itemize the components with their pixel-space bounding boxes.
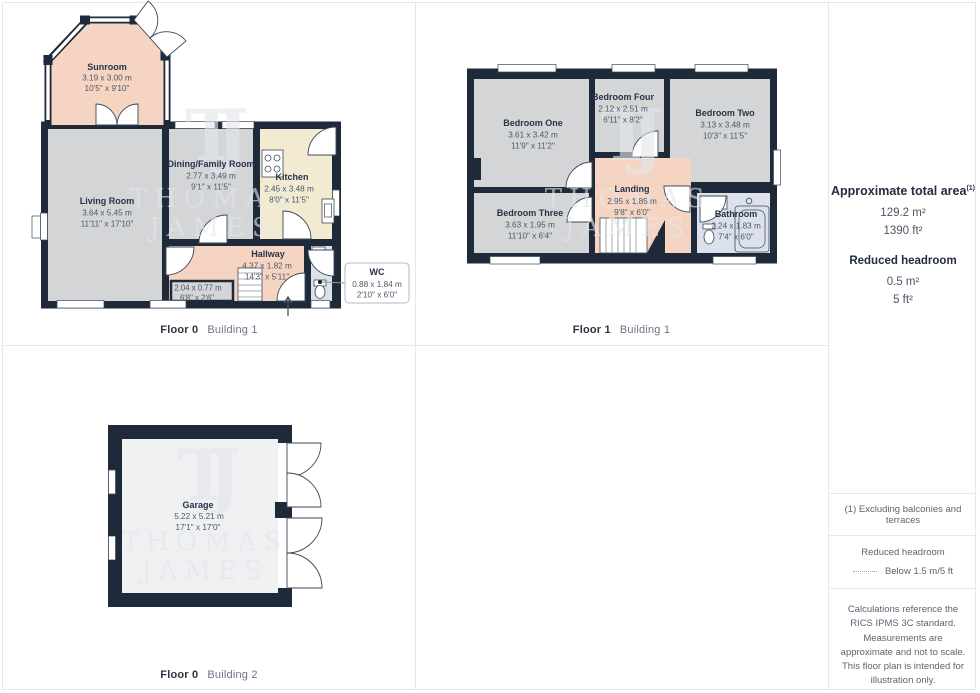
svg-text:10'5" x 9'10": 10'5" x 9'10" xyxy=(85,84,130,93)
bedroom-two-name: Bedroom Two xyxy=(695,108,755,118)
bedroom-three-name: Bedroom Three xyxy=(497,208,564,218)
floorplan-sheet: TJ THOMAS JAMES Sunroom 3.19 x 3.00 m 10… xyxy=(0,0,980,693)
living-name: Living Room xyxy=(80,196,135,206)
svg-text:11'11" x 17'10": 11'11" x 17'10" xyxy=(81,220,134,229)
floorplan-floor1-building1: TJ THOMAS JAMES Bedroom One 3.61 x 3.42 … xyxy=(415,0,828,345)
svg-text:7'4" x 6'0": 7'4" x 6'0" xyxy=(718,233,754,242)
svg-text:6'8" x 2'6": 6'8" x 2'6" xyxy=(180,294,214,303)
disclaimer-text: Calculations reference the RICS IPMS 3C … xyxy=(841,604,966,686)
svg-text:9'8" x 6'0": 9'8" x 6'0" xyxy=(614,208,650,217)
dotted-line-icon xyxy=(853,571,877,572)
reduced-headroom-legend: Reduced headroom Below 1.5 m/5 ft xyxy=(829,535,977,588)
svg-text:2.95 x 1.85 m: 2.95 x 1.85 m xyxy=(607,197,657,206)
svg-text:2.04 x 0.77 m: 2.04 x 0.77 m xyxy=(174,284,221,293)
svg-text:3.13 x 3.48 m: 3.13 x 3.48 m xyxy=(700,121,750,130)
reduced-headroom-title: Reduced headroom xyxy=(849,255,956,267)
floorplan-floor0-building2: TJ THOMAS JAMES Garage 5.22 x 5.21 m 17'… xyxy=(0,345,415,693)
svg-text:JAMES: JAMES xyxy=(138,556,269,586)
svg-text:JAMES: JAMES xyxy=(146,213,277,243)
total-area-section: Approximate total area(1) 129.2 m² 1390 … xyxy=(829,2,977,493)
svg-text:2.45 x 3.48 m: 2.45 x 3.48 m xyxy=(264,185,314,194)
dining-name: Dining/Family Room xyxy=(167,159,254,169)
garage-name: Garage xyxy=(182,500,213,510)
caption-floor0-building1: Floor 0Building 1 xyxy=(3,324,415,336)
svg-text:3.61 x 3.42 m: 3.61 x 3.42 m xyxy=(508,131,558,140)
disclaimer-section: Calculations reference the RICS IPMS 3C … xyxy=(829,588,977,690)
legend-value: Below 1.5 m/5 ft xyxy=(885,566,953,577)
footnote-marker: (1) xyxy=(966,184,975,191)
svg-text:5.22 x 5.21 m: 5.22 x 5.21 m xyxy=(174,512,224,521)
reduced-headroom-m2: 0.5 m² xyxy=(887,276,920,288)
svg-text:11'10" x 6'4": 11'10" x 6'4" xyxy=(508,232,552,241)
svg-text:17'1" x 17'0": 17'1" x 17'0" xyxy=(176,523,221,532)
svg-text:2.12 x 2.51 m: 2.12 x 2.51 m xyxy=(598,105,648,114)
svg-text:4.37 x 1.82 m: 4.37 x 1.82 m xyxy=(242,262,292,271)
svg-text:JAMES: JAMES xyxy=(561,213,692,243)
svg-text:0.88 x 1.84 m: 0.88 x 1.84 m xyxy=(352,280,402,289)
bathroom-name: Bathroom xyxy=(715,209,758,219)
svg-text:2.24 x 1.83 m: 2.24 x 1.83 m xyxy=(711,222,761,231)
sink-icon xyxy=(322,199,334,223)
caption-floor0-building2: Floor 0Building 2 xyxy=(3,669,415,681)
bedroom-four-name: Bedroom Four xyxy=(592,92,654,102)
svg-text:6'11" x 8'2": 6'11" x 8'2" xyxy=(603,116,643,125)
chimney-breast xyxy=(467,158,481,180)
svg-text:2.77 x 3.49 m: 2.77 x 3.49 m xyxy=(186,172,236,181)
svg-text:14'3" x 5'11": 14'3" x 5'11" xyxy=(245,273,289,282)
reduced-headroom-ft2: 5 ft² xyxy=(893,294,913,306)
footnote-section: (1) Excluding balconies and terraces xyxy=(829,493,977,535)
total-area-ft2: 1390 ft² xyxy=(884,225,923,237)
svg-text:3.64 x 5.45 m: 3.64 x 5.45 m xyxy=(82,209,132,218)
caption-floor1-building1: Floor 1Building 1 xyxy=(415,324,828,336)
floorplan-floor0-building1: TJ THOMAS JAMES Sunroom 3.19 x 3.00 m 10… xyxy=(0,0,415,345)
total-area-title: Approximate total area(1) xyxy=(831,184,975,198)
svg-text:3.19 x 3.00 m: 3.19 x 3.00 m xyxy=(82,74,132,83)
sunroom-name: Sunroom xyxy=(87,62,127,72)
total-area-m2: 129.2 m² xyxy=(880,207,925,219)
kitchen-name: Kitchen xyxy=(275,172,308,182)
hallway-name: Hallway xyxy=(251,249,285,259)
svg-text:9'1" x 11'5": 9'1" x 11'5" xyxy=(191,183,231,192)
bedroom-one-name: Bedroom One xyxy=(503,118,563,128)
svg-text:8'0" x 11'5": 8'0" x 11'5" xyxy=(269,196,309,205)
wc-name: WC xyxy=(370,267,385,277)
landing-name: Landing xyxy=(615,184,650,194)
svg-text:3.63 x 1.95 m: 3.63 x 1.95 m xyxy=(505,221,555,230)
legend-title: Reduced headroom xyxy=(861,547,944,558)
info-sidebar: Approximate total area(1) 129.2 m² 1390 … xyxy=(828,2,977,690)
svg-text:11'9" x 11'2": 11'9" x 11'2" xyxy=(511,142,555,151)
svg-text:10'3" x 11'5": 10'3" x 11'5" xyxy=(703,132,747,141)
svg-text:2'10" x 6'0": 2'10" x 6'0" xyxy=(357,291,397,300)
